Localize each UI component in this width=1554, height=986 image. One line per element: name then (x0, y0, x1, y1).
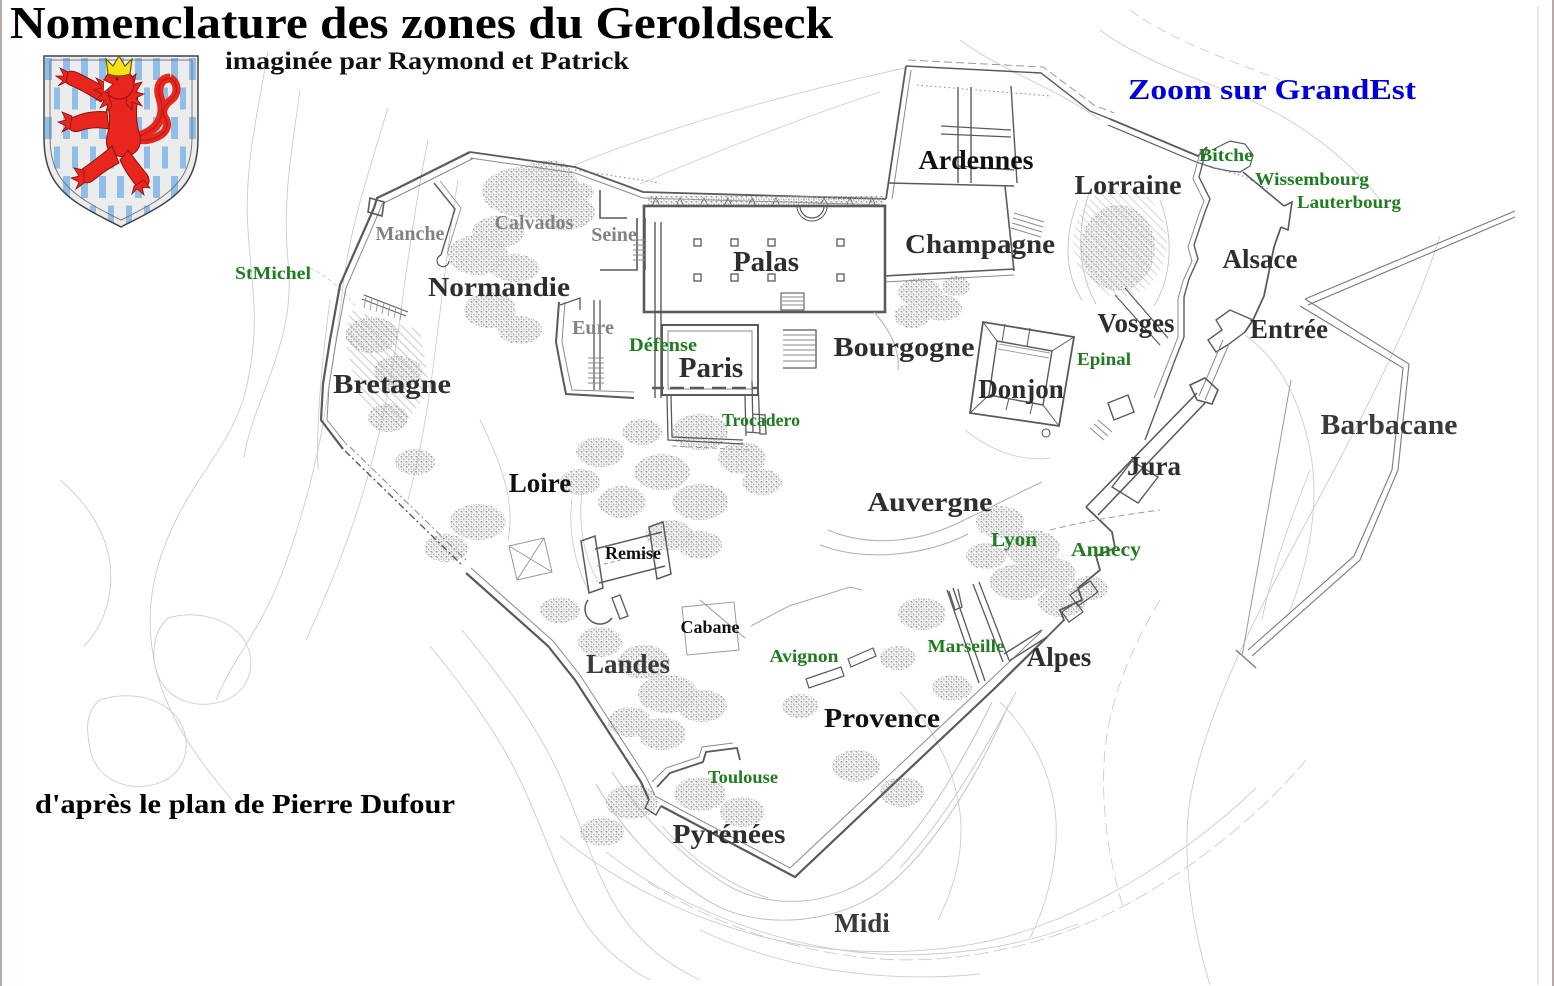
svg-text:Vosges: Vosges (1097, 308, 1174, 338)
svg-text:Trocadero: Trocadero (722, 410, 800, 430)
svg-text:Bretagne: Bretagne (333, 369, 451, 399)
svg-text:Entrée: Entrée (1250, 314, 1328, 344)
svg-text:Epinal: Epinal (1077, 349, 1131, 369)
svg-text:Palas: Palas (733, 246, 799, 278)
svg-text:Lauterbourg: Lauterbourg (1297, 192, 1401, 212)
svg-text:Défense: Défense (629, 335, 697, 356)
svg-text:Avignon: Avignon (770, 646, 839, 666)
svg-text:Auvergne: Auvergne (868, 487, 993, 517)
svg-text:StMichel: StMichel (235, 263, 311, 283)
svg-text:Annecy: Annecy (1071, 539, 1141, 561)
svg-text:Normandie: Normandie (428, 272, 570, 302)
svg-text:Provence: Provence (824, 703, 940, 733)
svg-text:Bitche: Bitche (1199, 145, 1253, 165)
svg-text:Landes: Landes (586, 649, 670, 679)
svg-text:Champagne: Champagne (905, 229, 1055, 259)
svg-text:Pyrénées: Pyrénées (673, 819, 786, 849)
svg-text:Midi: Midi (834, 908, 890, 938)
svg-text:Lorraine: Lorraine (1075, 170, 1182, 200)
svg-text:Loire: Loire (509, 468, 572, 498)
svg-text:Barbacane: Barbacane (1321, 410, 1458, 441)
svg-text:Calvados: Calvados (495, 212, 574, 234)
svg-text:Manche: Manche (376, 223, 445, 245)
svg-text:Ardennes: Ardennes (919, 145, 1034, 175)
svg-text:Nomenclature des zones du Gero: Nomenclature des zones du Geroldseck (10, 0, 833, 48)
svg-text:Zoom sur GrandEst: Zoom sur GrandEst (1128, 75, 1417, 106)
svg-text:Cabane: Cabane (680, 617, 739, 637)
svg-text:Marseille: Marseille (928, 636, 1005, 656)
svg-text:Paris: Paris (679, 352, 743, 384)
svg-text:Donjon: Donjon (978, 374, 1064, 404)
svg-text:Jura: Jura (1127, 451, 1182, 481)
svg-text:Alsace: Alsace (1223, 244, 1298, 274)
svg-text:Wissembourg: Wissembourg (1255, 169, 1369, 189)
svg-text:Alpes: Alpes (1027, 642, 1092, 672)
svg-text:Remise: Remise (605, 543, 661, 563)
svg-text:imaginée par Raymond et Patric: imaginée par Raymond et Patrick (225, 48, 629, 75)
svg-text:Lyon: Lyon (991, 529, 1037, 551)
svg-text:Toulouse: Toulouse (708, 767, 778, 787)
svg-text:Eure: Eure (572, 317, 614, 339)
svg-text:d'après le plan de Pierre Dufo: d'après le plan de Pierre Dufour (35, 789, 455, 819)
svg-text:Bourgogne: Bourgogne (834, 332, 975, 362)
svg-text:Seine: Seine (591, 224, 637, 246)
